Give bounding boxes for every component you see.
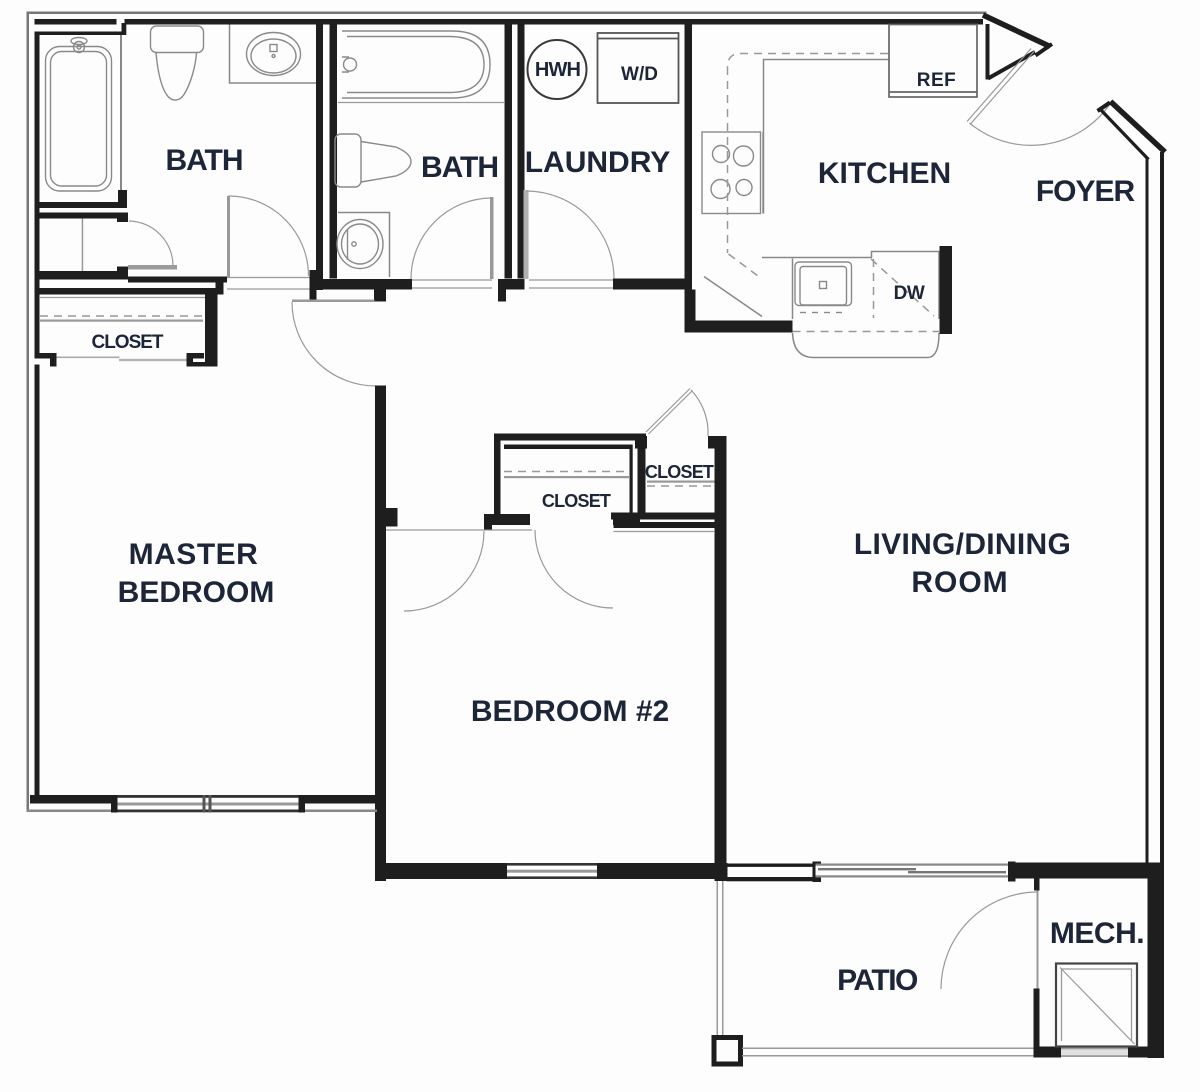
svg-text:W/D: W/D <box>621 64 658 85</box>
svg-text:CLOSET: CLOSET <box>91 332 163 353</box>
svg-text:HWH: HWH <box>535 59 581 81</box>
svg-text:BEDROOM: BEDROOM <box>118 576 275 609</box>
svg-text:BEDROOM #2: BEDROOM #2 <box>471 695 669 728</box>
svg-text:ROOM: ROOM <box>911 566 1008 599</box>
svg-text:MASTER: MASTER <box>129 538 259 571</box>
svg-text:BATH: BATH <box>421 151 498 184</box>
svg-text:LAUNDRY: LAUNDRY <box>525 146 671 179</box>
svg-text:CLOSET: CLOSET <box>542 491 611 511</box>
svg-text:DW: DW <box>894 283 925 304</box>
svg-text:CLOSET: CLOSET <box>645 462 714 482</box>
svg-text:BATH: BATH <box>165 144 242 177</box>
svg-text:MECH.: MECH. <box>1050 917 1144 950</box>
svg-text:REF: REF <box>917 70 957 91</box>
svg-text:LIVING/DINING: LIVING/DINING <box>854 528 1071 561</box>
svg-text:KITCHEN: KITCHEN <box>818 157 951 190</box>
svg-text:FOYER: FOYER <box>1036 175 1136 208</box>
svg-text:PATIO: PATIO <box>837 964 918 997</box>
